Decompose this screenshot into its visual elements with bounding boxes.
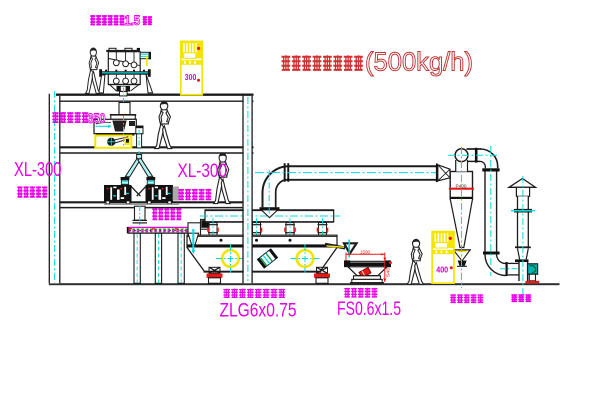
svg-text:XL-300: XL-300 [178, 160, 228, 182]
svg-text:ZLG6x0.75: ZLG6x0.75 [220, 300, 297, 322]
svg-text:(500kg/h): (500kg/h) [365, 47, 473, 77]
svg-text:1500: 1500 [360, 249, 370, 255]
svg-text:FS0.6x1.5: FS0.6x1.5 [337, 299, 401, 320]
svg-text:300: 300 [185, 72, 197, 82]
svg-text:1.5: 1.5 [124, 13, 140, 28]
svg-text:400: 400 [436, 265, 448, 275]
svg-text:XL-300: XL-300 [14, 158, 62, 181]
svg-text:540: 540 [385, 267, 391, 277]
svg-text:350: 350 [88, 111, 106, 126]
